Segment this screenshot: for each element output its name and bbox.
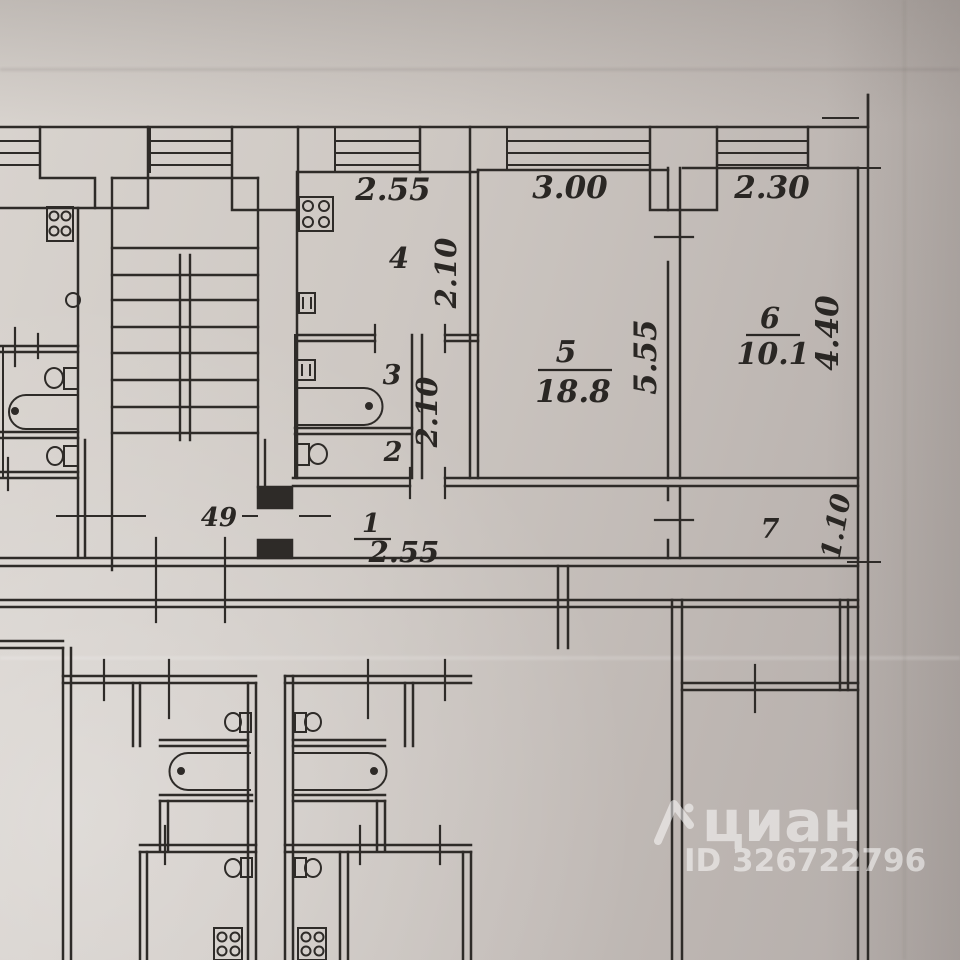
bathtub-icon	[9, 395, 78, 429]
bottom-middle-unit	[285, 660, 471, 960]
apartment-49-fixtures	[297, 197, 383, 465]
window-top-2	[150, 127, 232, 172]
bathtub-icon	[297, 388, 383, 425]
stove-icon	[298, 928, 326, 960]
toilet-icon	[295, 858, 321, 877]
dimension-label-room6-width: 2.30	[733, 170, 810, 206]
left-apartment-fixtures	[9, 207, 80, 466]
dimension-label-kitchen-width: 2.55	[354, 172, 431, 208]
dimension-label-room5-depth: 5.55	[628, 319, 664, 395]
window-top-room6	[717, 127, 808, 168]
washbasin-icon	[297, 360, 315, 380]
room-number-2: 2	[383, 437, 403, 468]
bathtub-icon	[295, 753, 387, 790]
apartment-entry-wall	[258, 487, 292, 558]
toilet-icon	[45, 368, 78, 389]
cian-logo-icon	[658, 804, 694, 842]
dimension-label-room7-depth: 1.10	[816, 491, 858, 561]
dimension-label-kitchen-depth: 2.10	[429, 238, 463, 310]
apartment-number: 49	[201, 503, 237, 533]
toilet-icon	[297, 444, 327, 465]
watermark-id: ID 326722796	[684, 843, 926, 879]
room-area-5: 18.8	[535, 374, 611, 410]
stove-icon	[214, 928, 242, 960]
bathtub-icon	[170, 753, 250, 790]
toilet-icon	[47, 446, 78, 466]
bottom-left-unit	[0, 641, 256, 960]
dimension-label-room5-width: 3.00	[532, 170, 608, 206]
north-exterior-wall	[0, 95, 868, 127]
left-apartment-walls	[0, 208, 85, 557]
room-number-4: 4	[389, 241, 409, 275]
room-number-3: 3	[383, 360, 402, 391]
window-top-kitchen	[335, 127, 420, 172]
toilet-icon	[295, 713, 321, 732]
room-number-5: 5	[556, 335, 577, 370]
stairwell	[112, 178, 265, 570]
bottom-right-unit	[672, 600, 858, 960]
room-number-7: 7	[761, 514, 780, 545]
kitchen-sink-icon	[299, 293, 315, 313]
dimension-label-bath-passage: 2.10	[410, 377, 444, 449]
floor-plan-photo: 2.55 3.00 2.30 4 2.10 5 18.8 5.55 6 10.1…	[0, 0, 960, 960]
window-top-1	[0, 127, 40, 172]
room-area-6: 10.1	[736, 337, 809, 372]
watermark: циан ID 326722796	[658, 789, 926, 879]
floor-plan-drawing: 2.55 3.00 2.30 4 2.10 5 18.8 5.55 6 10.1…	[0, 0, 960, 960]
room-number-6: 6	[760, 301, 780, 335]
window-top-room5	[507, 127, 650, 170]
dimension-label-room6-depth: 4.40	[810, 295, 846, 371]
stove-icon	[299, 197, 333, 231]
stove-icon	[47, 207, 73, 241]
